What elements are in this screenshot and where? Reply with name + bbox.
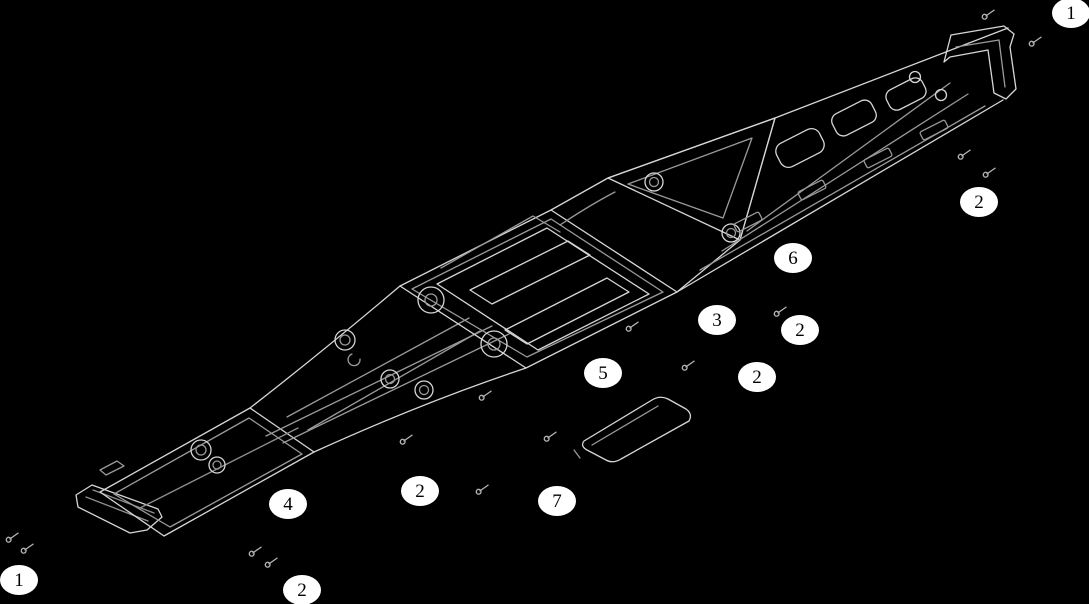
- screw-icon: [5, 531, 19, 543]
- screw-icon: [248, 545, 262, 557]
- callout-2-rear: 2: [960, 187, 998, 217]
- callout-label: 1: [1066, 4, 1076, 23]
- callout-label: 2: [795, 321, 805, 340]
- callout-label: 5: [598, 364, 608, 383]
- screw-icon: [681, 359, 695, 371]
- callout-2-mid-right: 2: [781, 315, 819, 345]
- callout-7: 7: [538, 486, 576, 516]
- callout-label: 2: [297, 581, 307, 600]
- screw-icon: [1028, 35, 1042, 47]
- callout-label: 2: [415, 482, 425, 501]
- left-brace: [250, 286, 526, 452]
- callout-label: 6: [788, 249, 798, 268]
- callout-5: 5: [584, 358, 622, 388]
- callout-2-center: 2: [738, 362, 776, 392]
- screw-icon: [957, 148, 971, 160]
- callout-label: 3: [712, 311, 722, 330]
- screw-icon: [625, 320, 639, 332]
- diagram-canvas: 1 2 6 3 2 2 5 2 7 4 1 2: [0, 0, 1089, 604]
- callout-3: 3: [698, 305, 736, 335]
- screw-icon: [543, 430, 557, 442]
- callout-1-rear: 1: [1052, 0, 1089, 28]
- callout-1-front: 1: [0, 565, 38, 595]
- screw-icon: [475, 483, 489, 495]
- callout-2-front: 2: [401, 476, 439, 506]
- callout-4: 4: [269, 489, 307, 519]
- screw-icon: [478, 389, 492, 401]
- callout-label: 7: [552, 492, 562, 511]
- rear-bumper: [944, 26, 1016, 99]
- callout-label: 2: [974, 193, 984, 212]
- screw-icon: [981, 8, 995, 20]
- callout-2-front-low: 2: [283, 575, 321, 604]
- screw-icon: [20, 542, 34, 554]
- rear-rails: [677, 28, 1008, 292]
- callout-label: 4: [283, 495, 293, 514]
- callout-label: 1: [14, 571, 24, 590]
- screw-icon: [982, 166, 996, 178]
- center-chassis-plate: [400, 210, 677, 368]
- access-plate: [574, 397, 690, 462]
- callout-label: 2: [752, 368, 762, 387]
- callout-6: 6: [774, 243, 812, 273]
- screw-icon: [264, 556, 278, 568]
- chassis-line-art: [0, 0, 1089, 604]
- screw-icon: [773, 305, 787, 317]
- screw-icon: [399, 433, 413, 445]
- right-brace: [551, 118, 775, 292]
- chassis-drawing: [5, 8, 1042, 568]
